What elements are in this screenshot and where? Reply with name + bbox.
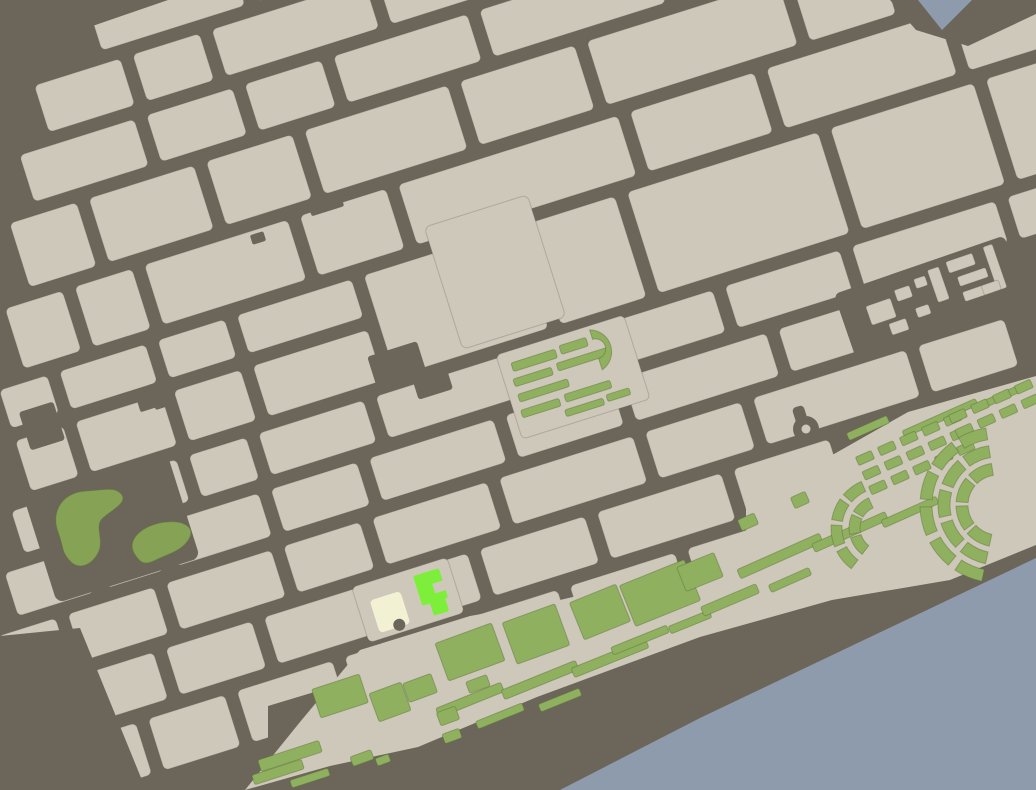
roundabout-island xyxy=(802,425,811,434)
garden-fan-arc xyxy=(938,489,952,517)
city-map-svg xyxy=(0,0,1036,790)
map-viewport[interactable] xyxy=(0,0,1036,790)
